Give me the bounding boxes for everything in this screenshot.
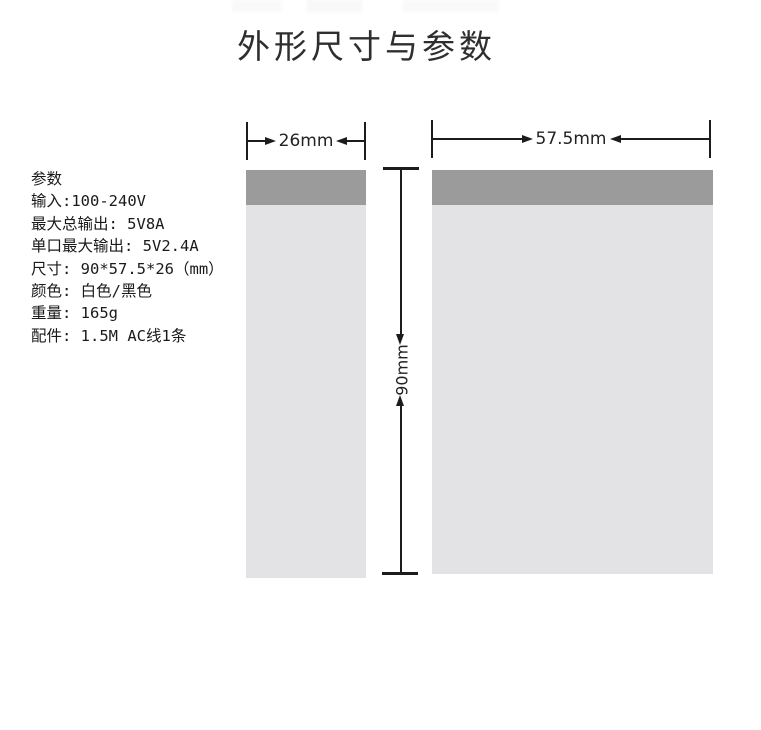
side-width-dimension: 26mm bbox=[246, 121, 366, 161]
arrow-shaft bbox=[347, 140, 364, 142]
arrow-left-icon bbox=[610, 135, 710, 143]
arrowhead-right bbox=[522, 135, 533, 143]
height-dimension-lower-line bbox=[400, 406, 402, 573]
spec-line-input: 输入:100-240V bbox=[31, 190, 224, 212]
height-label: 90mm bbox=[393, 344, 412, 396]
specs-panel: 参数 输入:100-240V 最大总输出: 5V8A 单口最大输出: 5V2.4… bbox=[31, 168, 224, 347]
arrow-left-icon bbox=[336, 137, 364, 145]
front-width-label: 57.5mm bbox=[533, 129, 610, 149]
arrow-shaft bbox=[433, 138, 522, 140]
spec-line-color: 颜色: 白色/黑色 bbox=[31, 280, 224, 302]
device-front-view bbox=[432, 170, 713, 574]
arrowhead-left bbox=[336, 137, 347, 145]
cropped-watermark-remnant bbox=[232, 0, 542, 12]
arrowhead-right bbox=[265, 137, 276, 145]
front-view-top-band bbox=[432, 170, 713, 205]
spec-line-weight: 重量: 165g bbox=[31, 302, 224, 324]
arrowhead-up bbox=[396, 395, 404, 406]
dimension-tick bbox=[709, 120, 711, 158]
arrow-shaft bbox=[621, 138, 710, 140]
height-dimension-bottom-tick bbox=[382, 572, 418, 575]
device-side-view bbox=[246, 170, 366, 578]
spec-line-max-total-output: 最大总输出: 5V8A bbox=[31, 213, 224, 235]
page-title: 外形尺寸与参数 bbox=[237, 20, 507, 68]
side-view-top-band bbox=[246, 170, 366, 205]
side-width-label: 26mm bbox=[276, 131, 337, 151]
arrow-right-icon bbox=[433, 135, 533, 143]
arrowhead-left bbox=[610, 135, 621, 143]
front-width-dimension: 57.5mm bbox=[431, 119, 711, 159]
spec-line-max-port-output: 单口最大输出: 5V2.4A bbox=[31, 235, 224, 257]
arrow-shaft bbox=[248, 140, 265, 142]
dimension-tick bbox=[364, 122, 366, 160]
spec-line-accessories: 配件: 1.5M AC线1条 bbox=[31, 325, 224, 347]
spec-line-dimensions: 尺寸: 90*57.5*26（mm） bbox=[31, 258, 224, 280]
arrow-right-icon bbox=[248, 137, 276, 145]
height-dimension-upper-line bbox=[400, 170, 402, 334]
specs-heading: 参数 bbox=[31, 168, 224, 190]
